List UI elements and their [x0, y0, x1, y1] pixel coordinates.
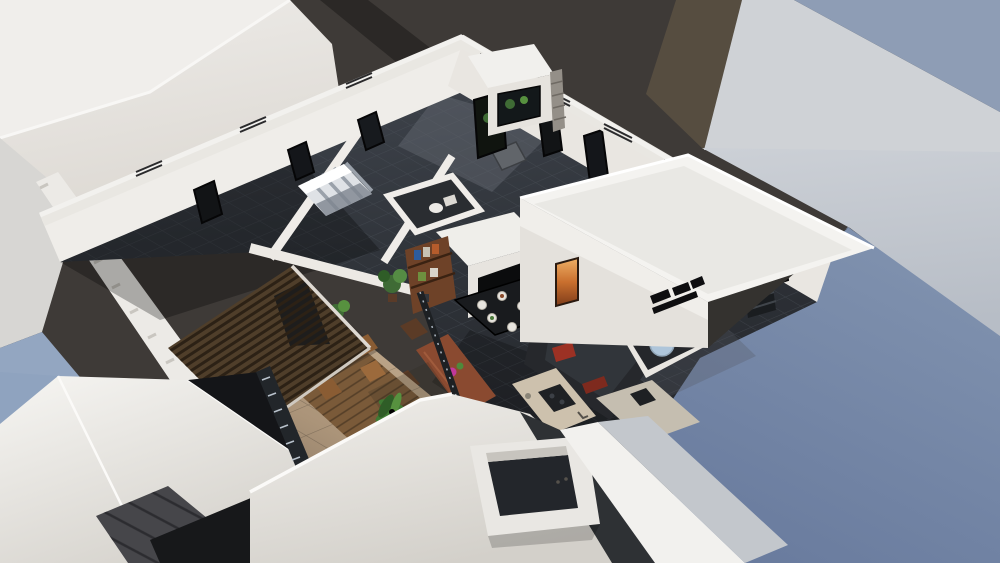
- fireplace-glow: [556, 258, 578, 306]
- book: [418, 272, 426, 281]
- render-viewport: [0, 0, 1000, 563]
- food: [500, 294, 504, 298]
- stairwell-opening: [488, 455, 578, 516]
- plant-foliage: [378, 270, 390, 282]
- book: [414, 250, 421, 260]
- vase: [525, 393, 531, 399]
- plant-pot: [388, 294, 397, 302]
- burner: [560, 400, 565, 405]
- food: [490, 316, 494, 320]
- burner: [550, 394, 555, 399]
- roof-mark: [564, 477, 568, 481]
- plate: [478, 301, 487, 310]
- flower-green: [457, 363, 464, 370]
- book: [432, 244, 439, 254]
- window-plant: [505, 99, 515, 109]
- toilet: [429, 203, 443, 213]
- plant-foliage: [338, 300, 350, 312]
- roof-mark: [556, 480, 560, 484]
- plant-foliage: [393, 269, 407, 283]
- architectural-render: [0, 0, 1000, 563]
- book: [423, 247, 430, 257]
- plate: [508, 323, 517, 332]
- book: [430, 268, 438, 277]
- window-plant: [520, 96, 528, 104]
